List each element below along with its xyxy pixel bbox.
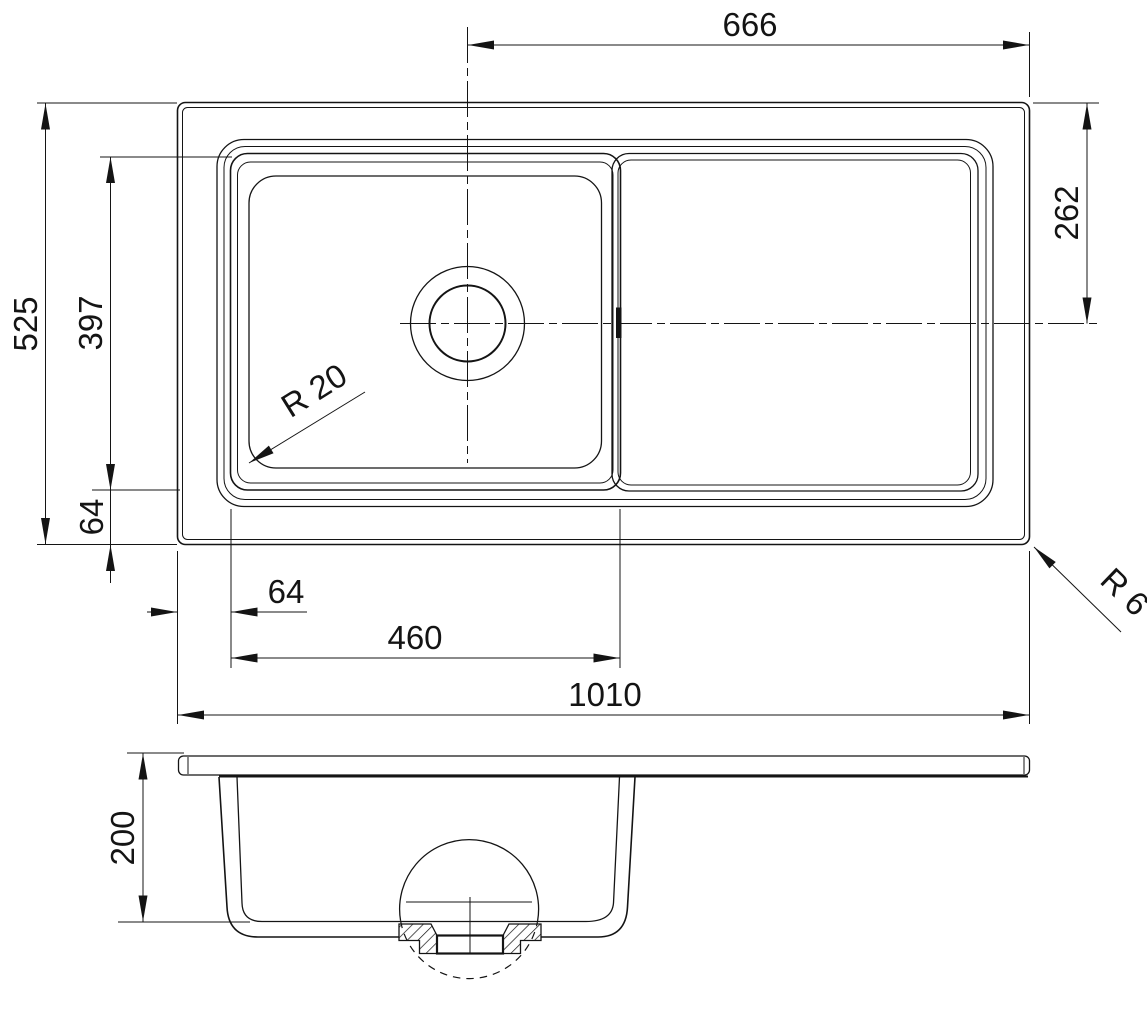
dim-label-525: 525 xyxy=(7,296,44,351)
dim-label-397: 397 xyxy=(72,295,109,350)
dim-label-200: 200 xyxy=(104,810,141,865)
dim-label-64-bottom: 64 xyxy=(268,573,305,610)
technical-drawing-page: 666 525 397 64 262 R 20 R 6 64 xyxy=(0,0,1147,1015)
dim-label-1010: 1010 xyxy=(568,676,641,713)
drawing-canvas: 666 525 397 64 262 R 20 R 6 64 xyxy=(0,0,1147,1015)
paper-background xyxy=(0,0,1147,1015)
dim-label-666: 666 xyxy=(722,6,777,43)
dim-label-262: 262 xyxy=(1048,185,1085,240)
dim-label-460: 460 xyxy=(387,619,442,656)
dim-label-64-left: 64 xyxy=(73,499,110,536)
overflow-mark xyxy=(616,308,622,339)
